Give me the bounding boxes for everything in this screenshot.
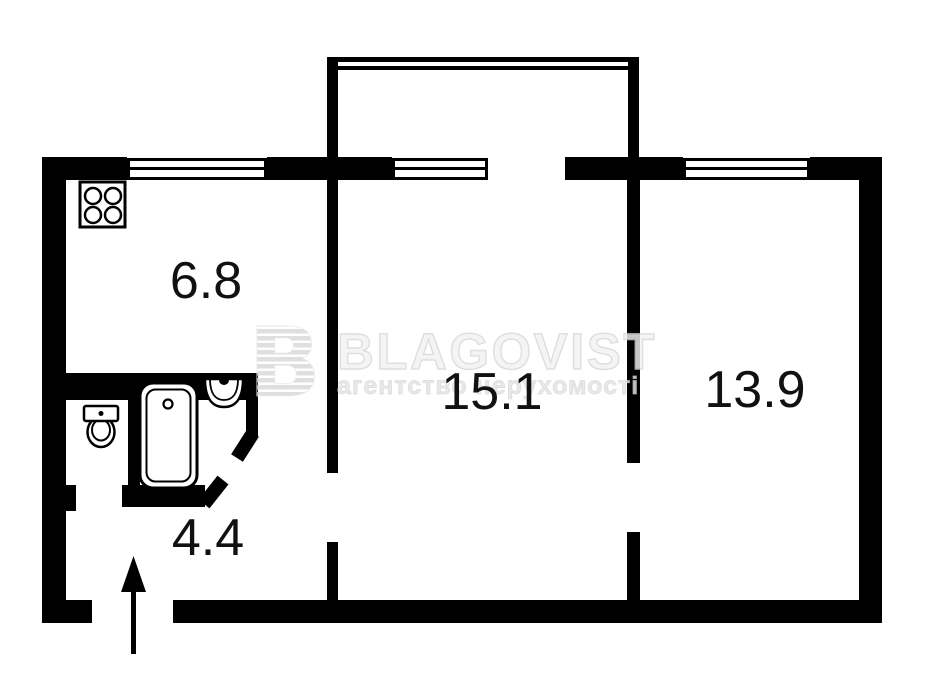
wall-kitchen-living-top [327, 180, 338, 473]
watermark-logo-icon: B [248, 307, 321, 419]
balcony-door-window [392, 158, 488, 180]
wall-right [859, 157, 882, 623]
window-divider [130, 167, 264, 170]
wall-hallway-living-bottom [327, 542, 338, 600]
stove-icon [80, 182, 125, 227]
wall-bathroom-right [246, 373, 258, 437]
wall-living-bedroom-bottom [627, 532, 640, 600]
bedroom-window [683, 158, 810, 180]
wall-top-3 [565, 157, 683, 180]
entry-arrow-icon [121, 556, 146, 654]
window-divider [395, 167, 485, 170]
toilet-icon [84, 406, 118, 447]
kitchen-window [127, 158, 267, 180]
floor-plan: 6.8 15.1 13.9 4.4 B BLAGOVIST агентство … [0, 0, 939, 700]
bathroom-door-leaf-bottom [204, 480, 223, 504]
balcony-wall-left [327, 57, 338, 157]
wall-living-bedroom-top [627, 180, 640, 463]
balcony-railing-outer [327, 57, 639, 62]
balcony-railing-inner [327, 66, 639, 70]
room-label-hallway: 4.4 [172, 508, 244, 568]
wall-bottom-left-stub [42, 600, 92, 623]
wall-top-2 [267, 157, 392, 180]
balcony-wall-right [628, 57, 639, 157]
room-label-kitchen: 6.8 [170, 251, 242, 311]
wall-bathroom-bottom [122, 485, 205, 507]
wall-left [42, 157, 66, 623]
agency-watermark: B BLAGOVIST агентство нерухомості [0, 0, 939, 700]
room-label-bedroom: 13.9 [704, 360, 805, 420]
wall-bottom [173, 600, 882, 623]
wall-bathroom-top [66, 373, 258, 400]
room-label-living-room: 15.1 [441, 362, 542, 422]
window-divider [686, 167, 807, 170]
wall-wc-door-stub [66, 485, 76, 511]
